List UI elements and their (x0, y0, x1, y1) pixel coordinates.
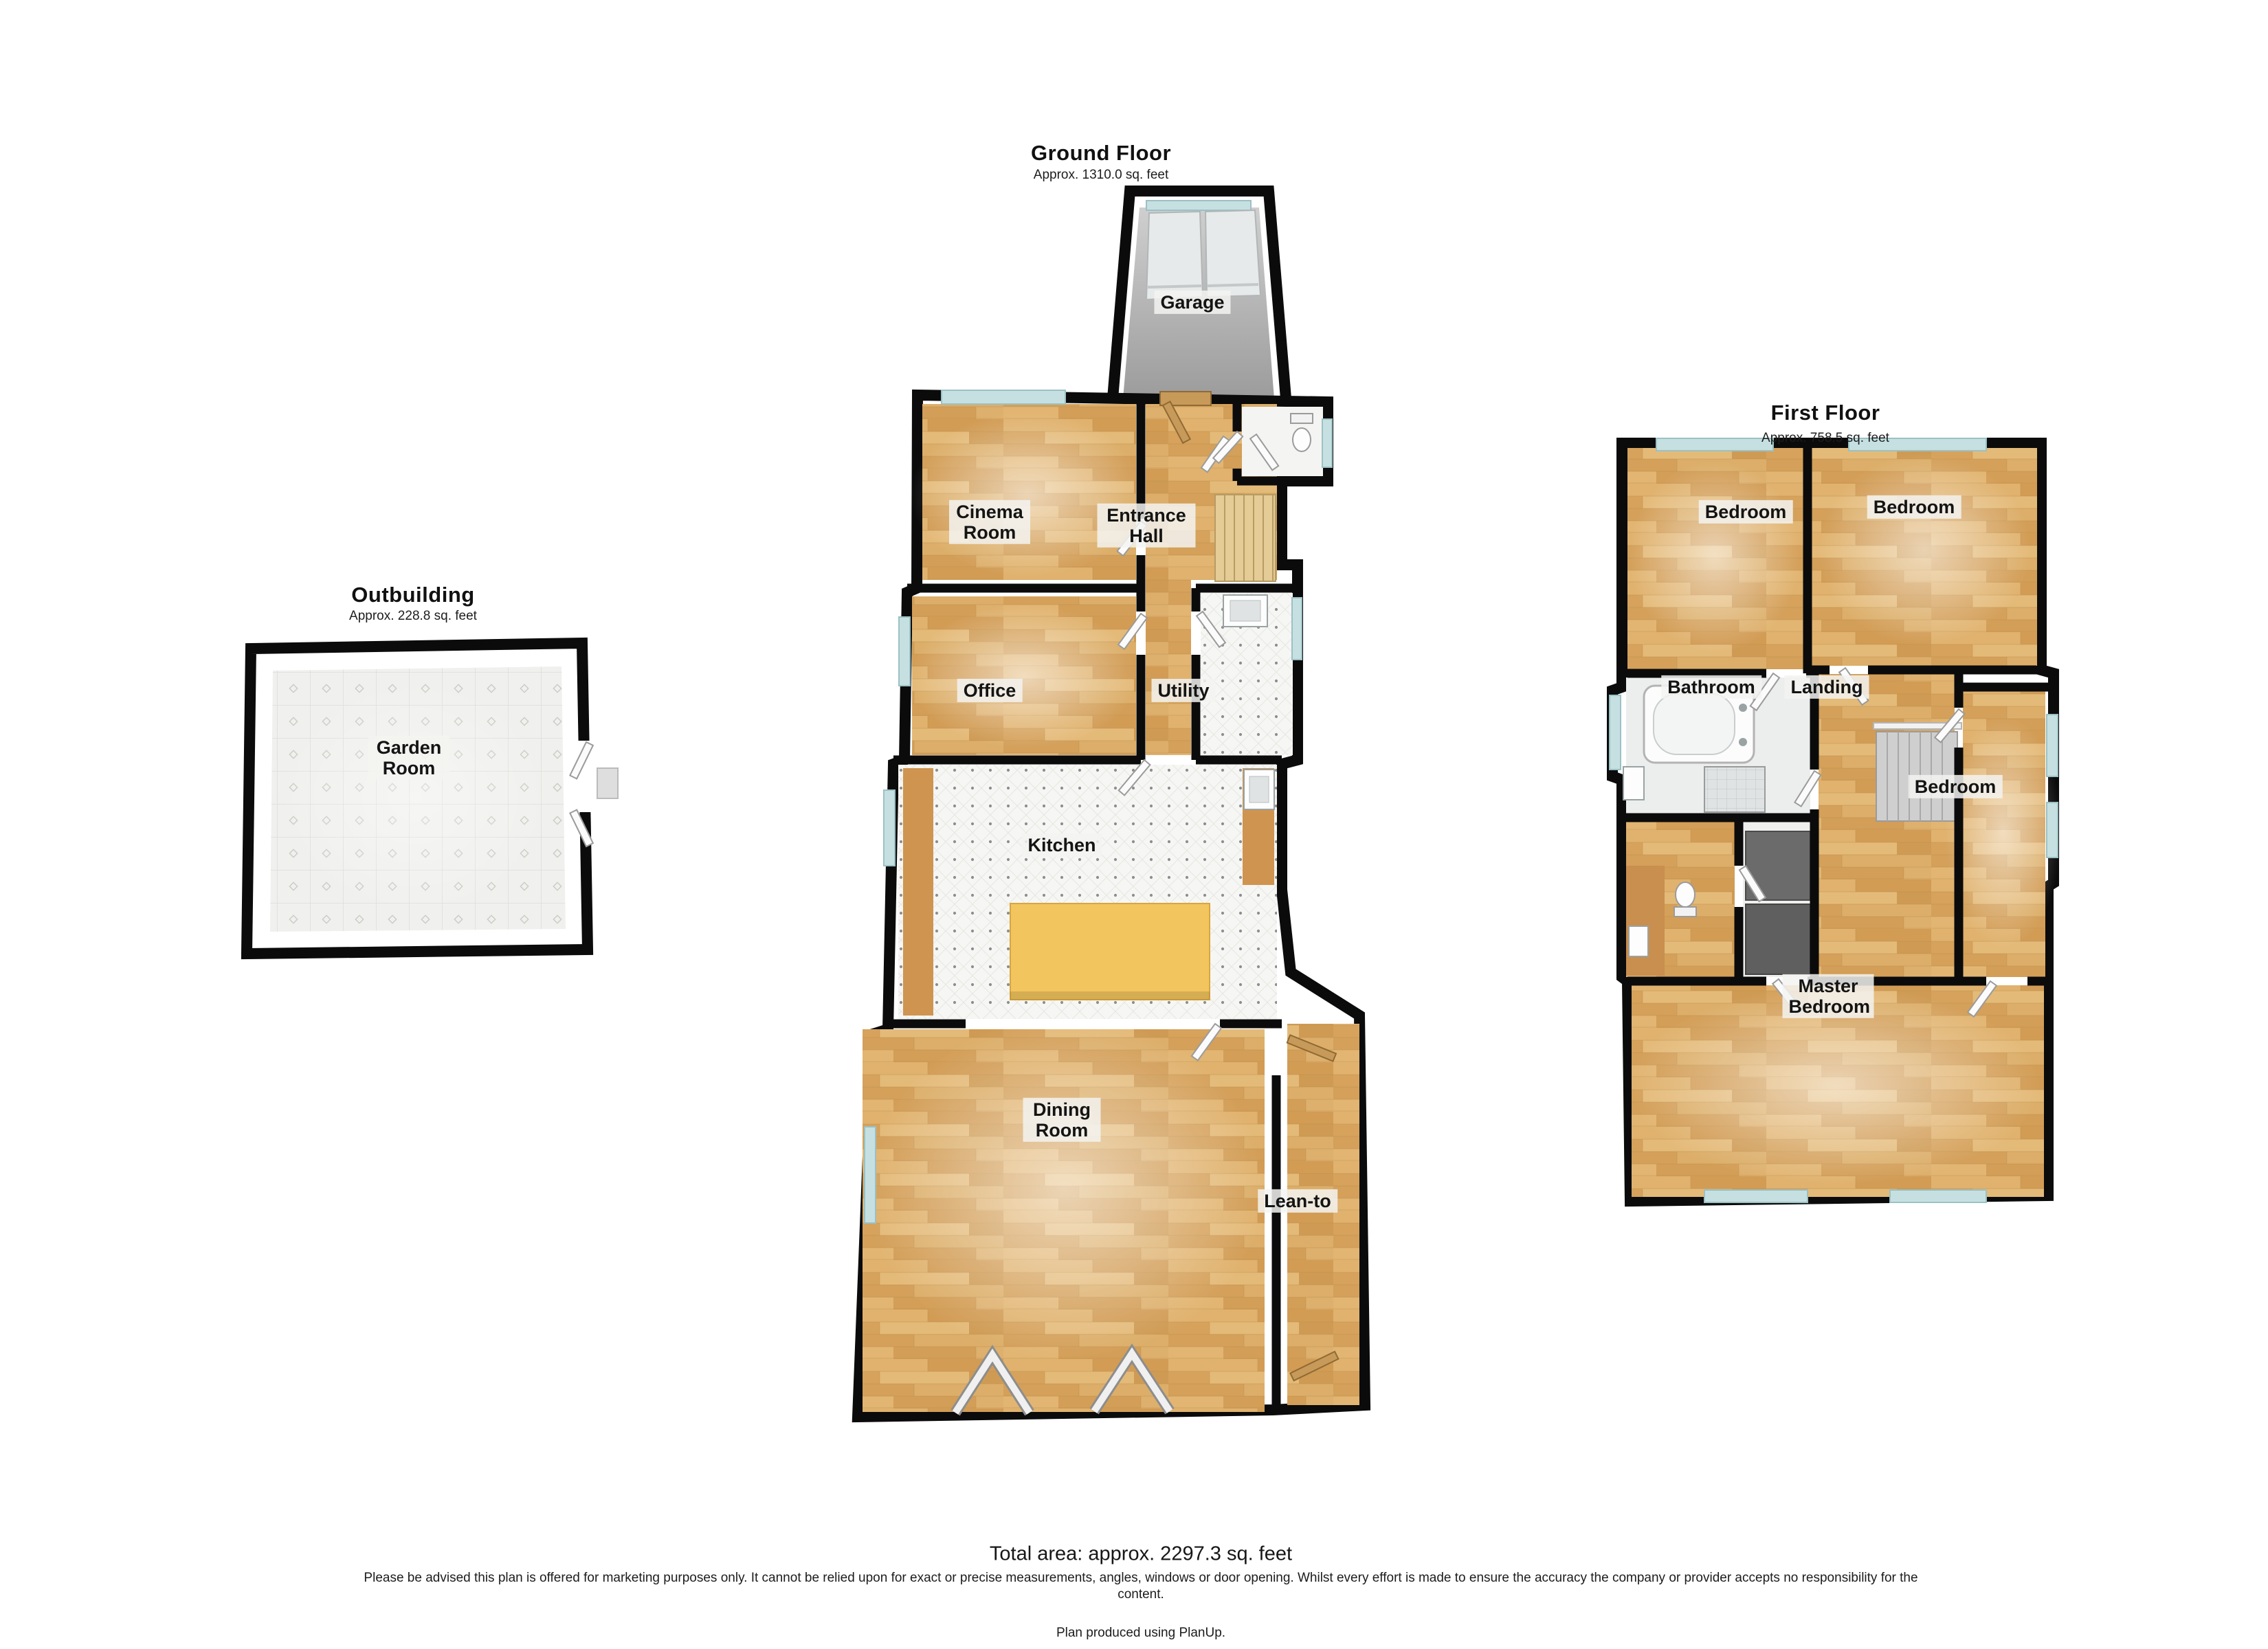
room-label-bedroom-3: Bedroom (1909, 775, 2003, 798)
utility-sink (1223, 595, 1267, 627)
outbuilding-subtitle: Approx. 228.8 sq. feet (349, 609, 477, 624)
room-label-garden-room: Garden Room (368, 736, 449, 780)
room-label-utility: Utility (1151, 679, 1215, 702)
hallway-floor (1146, 580, 1191, 755)
room-label-bathroom: Bathroom (1661, 675, 1761, 699)
room-label-lean-to: Lean-to (1258, 1189, 1337, 1213)
room-label-bedroom-2: Bedroom (1867, 495, 1961, 519)
landing-floor (1819, 674, 1955, 977)
first-floor-subtitle: Approx. 758.5 sq. feet (1761, 431, 1889, 446)
room-label-cinema-room: Cinema Room (949, 500, 1030, 544)
room-label-kitchen: Kitchen (1021, 833, 1102, 857)
floorplan-page: Ground Floor Approx. 1310.0 sq. feet Out… (0, 0, 2268, 1649)
outbuilding-plan (247, 643, 618, 954)
kitchen-island (1010, 904, 1210, 1000)
room-label-office: Office (957, 679, 1023, 702)
room-label-bedroom-1: Bedroom (1699, 500, 1793, 524)
disclaimer-line1: Please be advised this plan is offered f… (364, 1571, 1917, 1586)
ground-floor-plan (858, 191, 1365, 1417)
room-label-entrance-hall: Entrance Hall (1098, 504, 1196, 548)
outbuilding-title: Outbuilding (351, 583, 474, 607)
stairs-first (1874, 723, 1961, 821)
toilet-fixture-first (1674, 882, 1696, 917)
kitchen-counter-left (903, 768, 933, 1016)
planup-credit: Plan produced using PlanUp. (1056, 1626, 1225, 1641)
ground-floor-subtitle: Approx. 1310.0 sq. feet (1034, 168, 1168, 183)
total-area-text: Total area: approx. 2297.3 sq. feet (990, 1543, 1292, 1566)
kitchen-sink (1244, 770, 1274, 809)
ground-floor-title: Ground Floor (1031, 141, 1171, 166)
first-floor-plan (1610, 438, 2062, 1202)
room-label-landing: Landing (1785, 675, 1869, 699)
room-label-dining-room: Dining Room (1023, 1098, 1101, 1142)
room-label-garage: Garage (1154, 291, 1230, 314)
wc-counter (1626, 866, 1665, 976)
lean-to-floor (1287, 1024, 1359, 1405)
garage-window (1146, 201, 1251, 210)
room-label-master-bedroom: Master Bedroom (1783, 974, 1874, 1018)
first-floor-title: First Floor (1771, 401, 1880, 425)
bathroom-sink (1623, 767, 1644, 800)
floorplan-canvas (0, 0, 2268, 1649)
shower-fixture (1704, 767, 1765, 812)
disclaimer-line2: content. (1118, 1587, 1164, 1602)
toilet-fixture (1291, 414, 1313, 451)
wc-sink (1629, 926, 1648, 956)
stairs-ground (1215, 495, 1276, 581)
